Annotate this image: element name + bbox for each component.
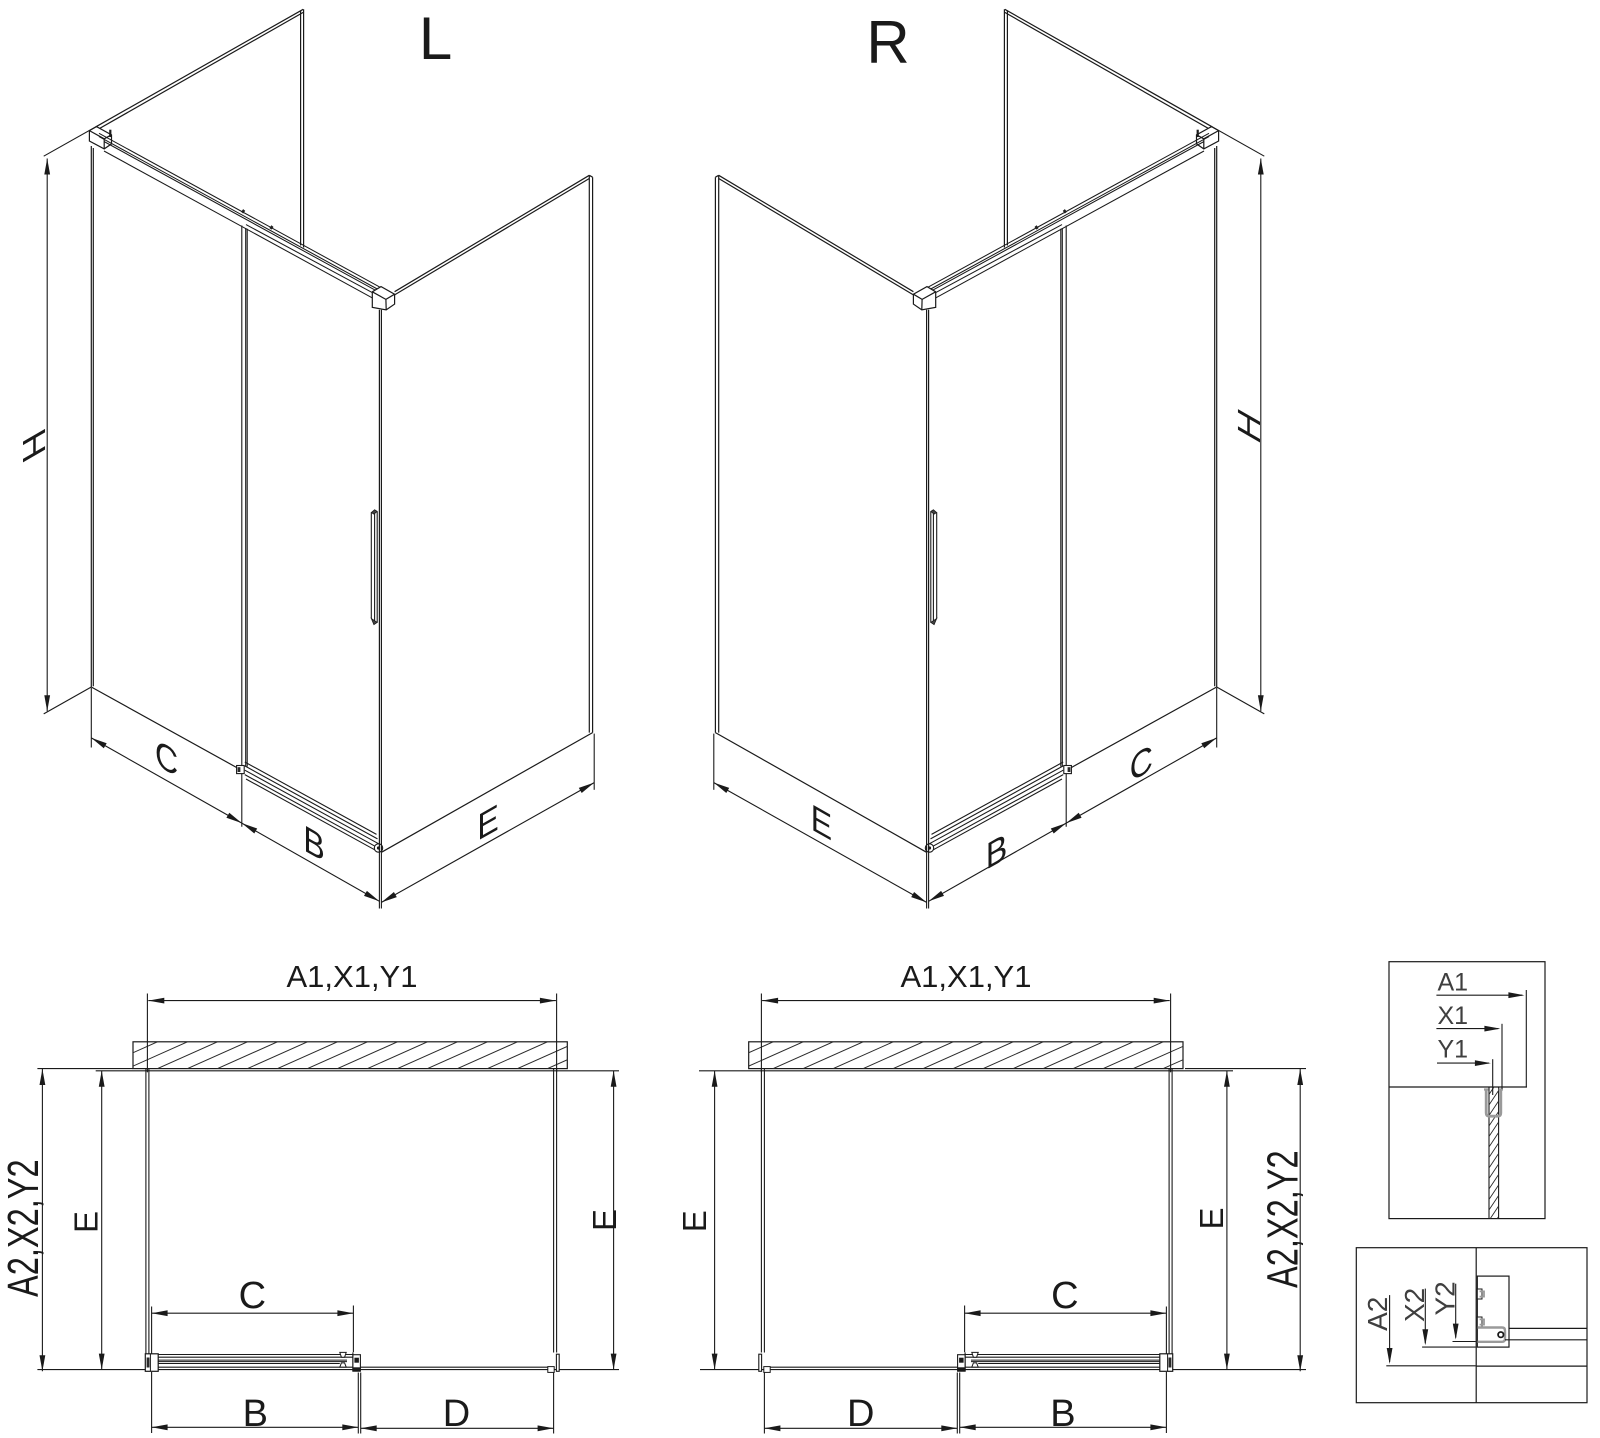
svg-text:E: E (1193, 1207, 1230, 1229)
svg-text:E: E (586, 1209, 623, 1231)
svg-text:C: C (1051, 1275, 1078, 1317)
svg-text:A2: A2 (1362, 1297, 1393, 1331)
svg-text:A1,X1,Y1: A1,X1,Y1 (287, 959, 418, 994)
svg-text:D: D (847, 1393, 874, 1435)
svg-text:Y2: Y2 (1429, 1281, 1460, 1315)
svg-text:X1: X1 (1438, 1002, 1469, 1030)
svg-text:A1,X1,Y1: A1,X1,Y1 (901, 959, 1032, 994)
svg-text:A2,X2,Y2: A2,X2,Y2 (0, 1159, 48, 1297)
svg-text:E: E (676, 1210, 713, 1232)
svg-text:C: C (239, 1275, 266, 1317)
svg-text:Y1: Y1 (1438, 1035, 1469, 1063)
svg-text:A2,X2,Y2: A2,X2,Y2 (1259, 1150, 1308, 1288)
svg-text:B: B (1050, 1393, 1075, 1435)
svg-text:E: E (68, 1211, 105, 1233)
svg-text:D: D (443, 1393, 470, 1435)
svg-text:B: B (243, 1393, 268, 1435)
svg-text:X2: X2 (1399, 1288, 1430, 1322)
svg-text:A1: A1 (1438, 969, 1469, 997)
svg-text:L: L (419, 5, 452, 72)
svg-text:R: R (866, 9, 909, 76)
